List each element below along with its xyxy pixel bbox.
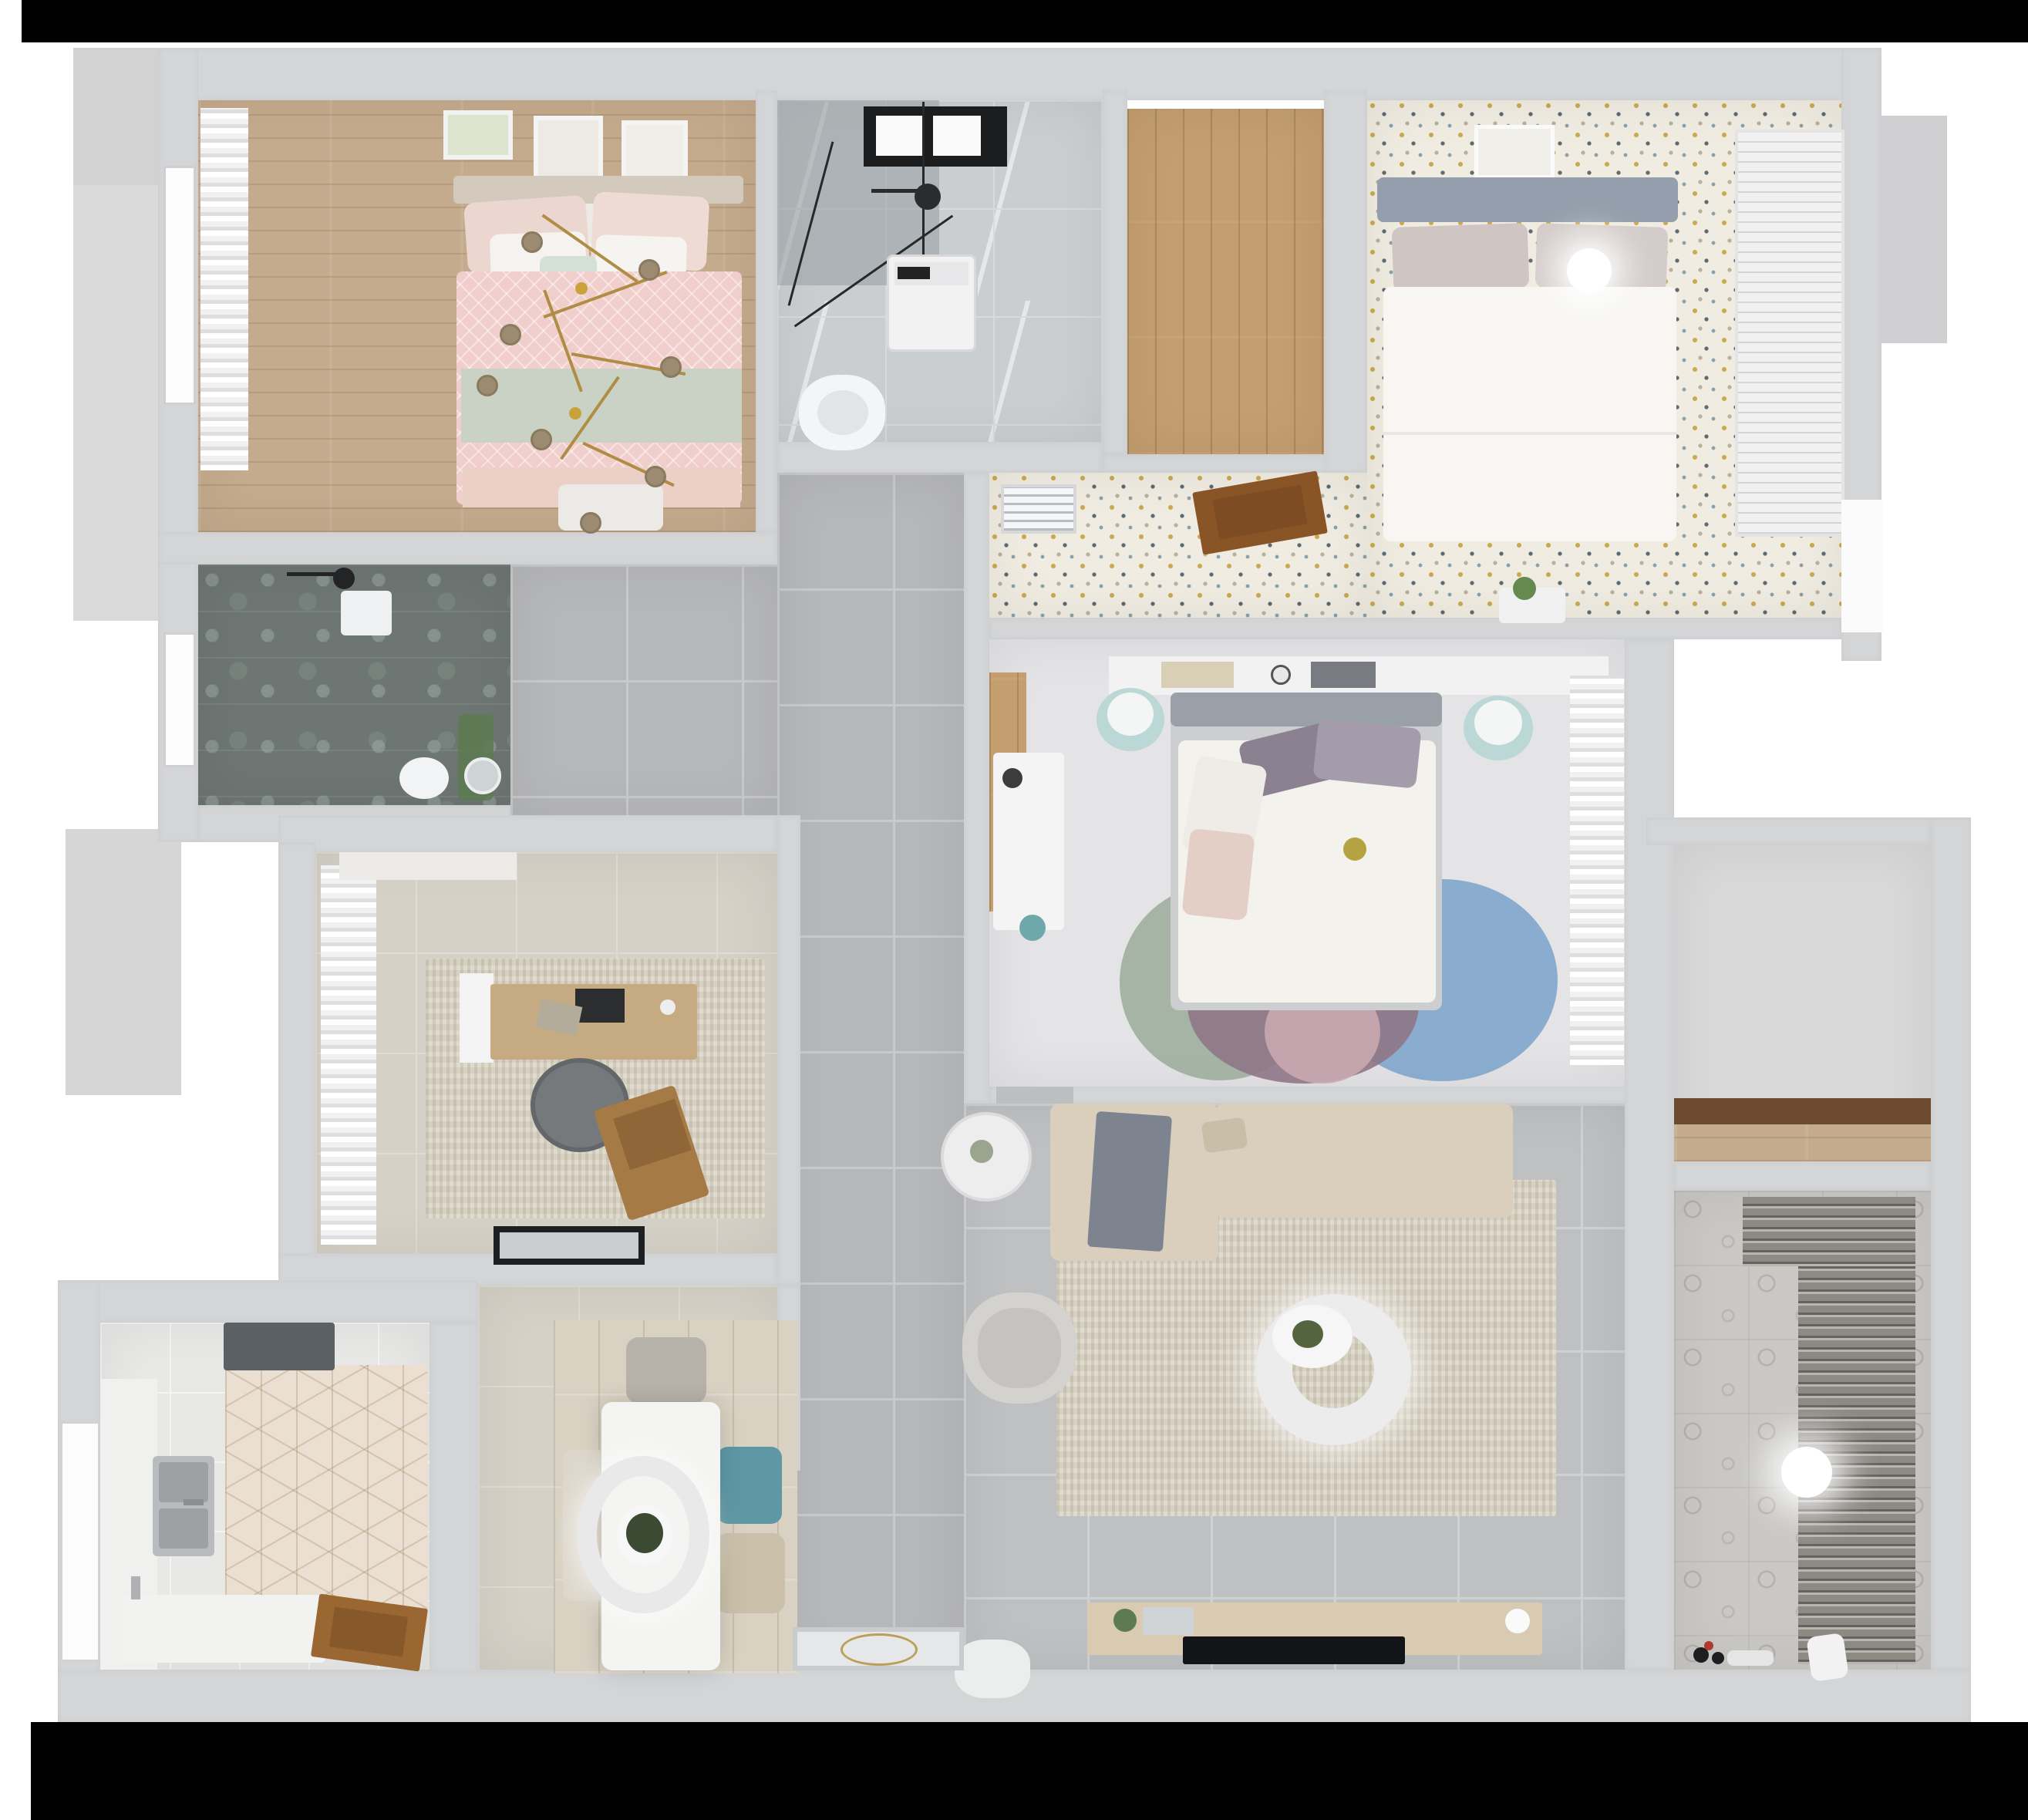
bathroom1-skylight-pane [876, 116, 922, 156]
wall-kitchen-top [58, 1280, 478, 1323]
bedroom2-pillow [1392, 223, 1530, 292]
apartment-floorplan-render [0, 0, 2028, 1820]
balcony-toy-red [1704, 1641, 1713, 1650]
chandelier-globe [477, 375, 498, 396]
bedroom2-ceiling-lamp [1567, 248, 1612, 293]
chandelier-globe [638, 259, 660, 281]
wall-study-right [777, 815, 800, 1286]
bedroom3-desk-lamp [1002, 768, 1022, 788]
wall-closet-bedroom2 [1324, 90, 1367, 473]
tv-console-plant [1113, 1609, 1137, 1632]
bedroom2-wardrobe [1735, 130, 1844, 537]
bedroom1-window [163, 166, 196, 405]
tv-screen [1183, 1636, 1405, 1664]
study-mug [660, 999, 675, 1015]
bedroom1-bench [558, 484, 663, 531]
top-black-bar [22, 0, 2028, 42]
storage-shelf-band [1674, 1098, 1931, 1124]
bedroom2-art-frame [1474, 125, 1555, 179]
room-hallway-upper [510, 565, 777, 815]
balcony-blinds [1798, 1197, 1915, 1664]
balcony-ceiling-light [1781, 1447, 1832, 1498]
dining-chair-gray [626, 1337, 706, 1404]
bedroom3-nightstand-top [1474, 700, 1522, 745]
bedroom1-art-green [443, 110, 513, 160]
room-closet [1127, 109, 1324, 454]
kitchen-sink-basin [159, 1508, 208, 1549]
bedroom3-clock [1271, 665, 1291, 685]
toilet-seat [817, 390, 868, 435]
kitchen-sink-basin [159, 1462, 208, 1502]
chandelier-joint [569, 407, 581, 420]
corridor-vent-grille [1001, 484, 1076, 534]
wall-storage-balcony [1674, 1161, 1931, 1191]
wall-bedroom1-bottom [158, 532, 777, 565]
study-side-panel [460, 973, 494, 1063]
wall-bathroom1-closet [1103, 90, 1127, 454]
chandelier-globe [500, 324, 521, 345]
wall-bedroom1-bathroom1 [756, 90, 777, 532]
chandelier-globe [645, 466, 666, 487]
bedroom3-nightstand-top [1107, 693, 1154, 736]
bathroom2-cistern [341, 591, 392, 635]
bathroom2-window [163, 632, 196, 767]
dining-chair-teal [717, 1447, 782, 1524]
kitchen-tub-faucet [131, 1576, 140, 1599]
chandelier-globe [531, 429, 552, 450]
living-pouf [955, 1640, 1030, 1698]
wall-bedroom3-bottom [989, 1087, 1654, 1104]
wall-kitchen-right [430, 1323, 478, 1724]
tv-console-lamp [1505, 1609, 1530, 1633]
chandelier-globe [580, 512, 601, 534]
bedroom3-pillow-purple [1312, 718, 1421, 789]
bedroom2-duvet-fold [1383, 432, 1676, 435]
wall-study-left [278, 842, 315, 1282]
bedroom2-duvet [1383, 287, 1676, 541]
bg-gray-right-fragment [1881, 116, 1947, 343]
balcony-toy [1712, 1652, 1724, 1664]
balcony-blinds-stack [1743, 1197, 1915, 1266]
bg-gray-left-wedge [66, 829, 181, 1095]
wall-study-top [278, 815, 777, 852]
sofa-throw [1087, 1111, 1172, 1252]
kitchen-hex-floor [225, 1365, 427, 1616]
dining-centerpiece-plant [626, 1513, 663, 1553]
wall-bedroom3-top [989, 618, 1841, 639]
study-window-sill [339, 852, 517, 880]
wall-outer-right [1931, 817, 1971, 1670]
tv-console-frames [1143, 1607, 1194, 1635]
bedroom3-gold-ornament [1343, 838, 1366, 861]
kitchen-fridge [224, 1323, 335, 1370]
balcony-towel [1806, 1633, 1849, 1682]
bottom-black-bar [31, 1722, 2028, 1820]
kitchen-window [60, 1421, 100, 1662]
wall-hall-corridor [964, 473, 989, 1104]
kitchen-counter-bottom [123, 1595, 325, 1663]
study-curtain [321, 865, 376, 1245]
sofa-cushion [1201, 1117, 1248, 1153]
bedroom3-pillow-blush [1181, 828, 1255, 921]
bedroom2-right-door [1841, 500, 1883, 632]
corridor-plant [1513, 577, 1536, 600]
study-monitor [575, 989, 625, 1023]
room-hallway-main [777, 473, 964, 1670]
bedroom1-curtain [200, 108, 248, 470]
balcony-tray [1727, 1650, 1774, 1666]
bathroom2-mirror [464, 757, 501, 794]
side-table-plant [970, 1140, 993, 1163]
bathroom2-toilet [399, 757, 449, 799]
study-doormat [494, 1226, 645, 1265]
bedroom2-headboard [1377, 177, 1678, 222]
living-lamp-plant [1292, 1320, 1323, 1348]
armchair-seat [978, 1308, 1061, 1388]
washing-machine-controls [898, 267, 930, 279]
bathroom1-skylight-pane [933, 116, 981, 156]
bedroom3-books [1311, 662, 1376, 688]
bathroom2-shower-head [333, 568, 355, 589]
bedroom3-stool-teal [1019, 915, 1046, 941]
chandelier-joint [575, 282, 588, 295]
dining-chair-beige [716, 1533, 785, 1613]
entry-doormat-emblem [841, 1633, 918, 1666]
bedroom1-throw [461, 369, 742, 443]
kitchen-faucet [184, 1499, 204, 1505]
shower-head [915, 184, 941, 210]
wall-outer-top [158, 48, 1881, 100]
bedroom3-headboard [1171, 693, 1442, 726]
sofa-main [1215, 1104, 1513, 1218]
bedroom3-curtain [1570, 676, 1624, 1065]
chandelier-globe [521, 231, 543, 253]
wall-right-mid [1625, 639, 1674, 1670]
chandelier-globe [660, 356, 682, 378]
bedroom3-door-opening [996, 1087, 1073, 1104]
wall-storage-top [1646, 817, 1931, 845]
bedroom3-books [1161, 662, 1234, 688]
